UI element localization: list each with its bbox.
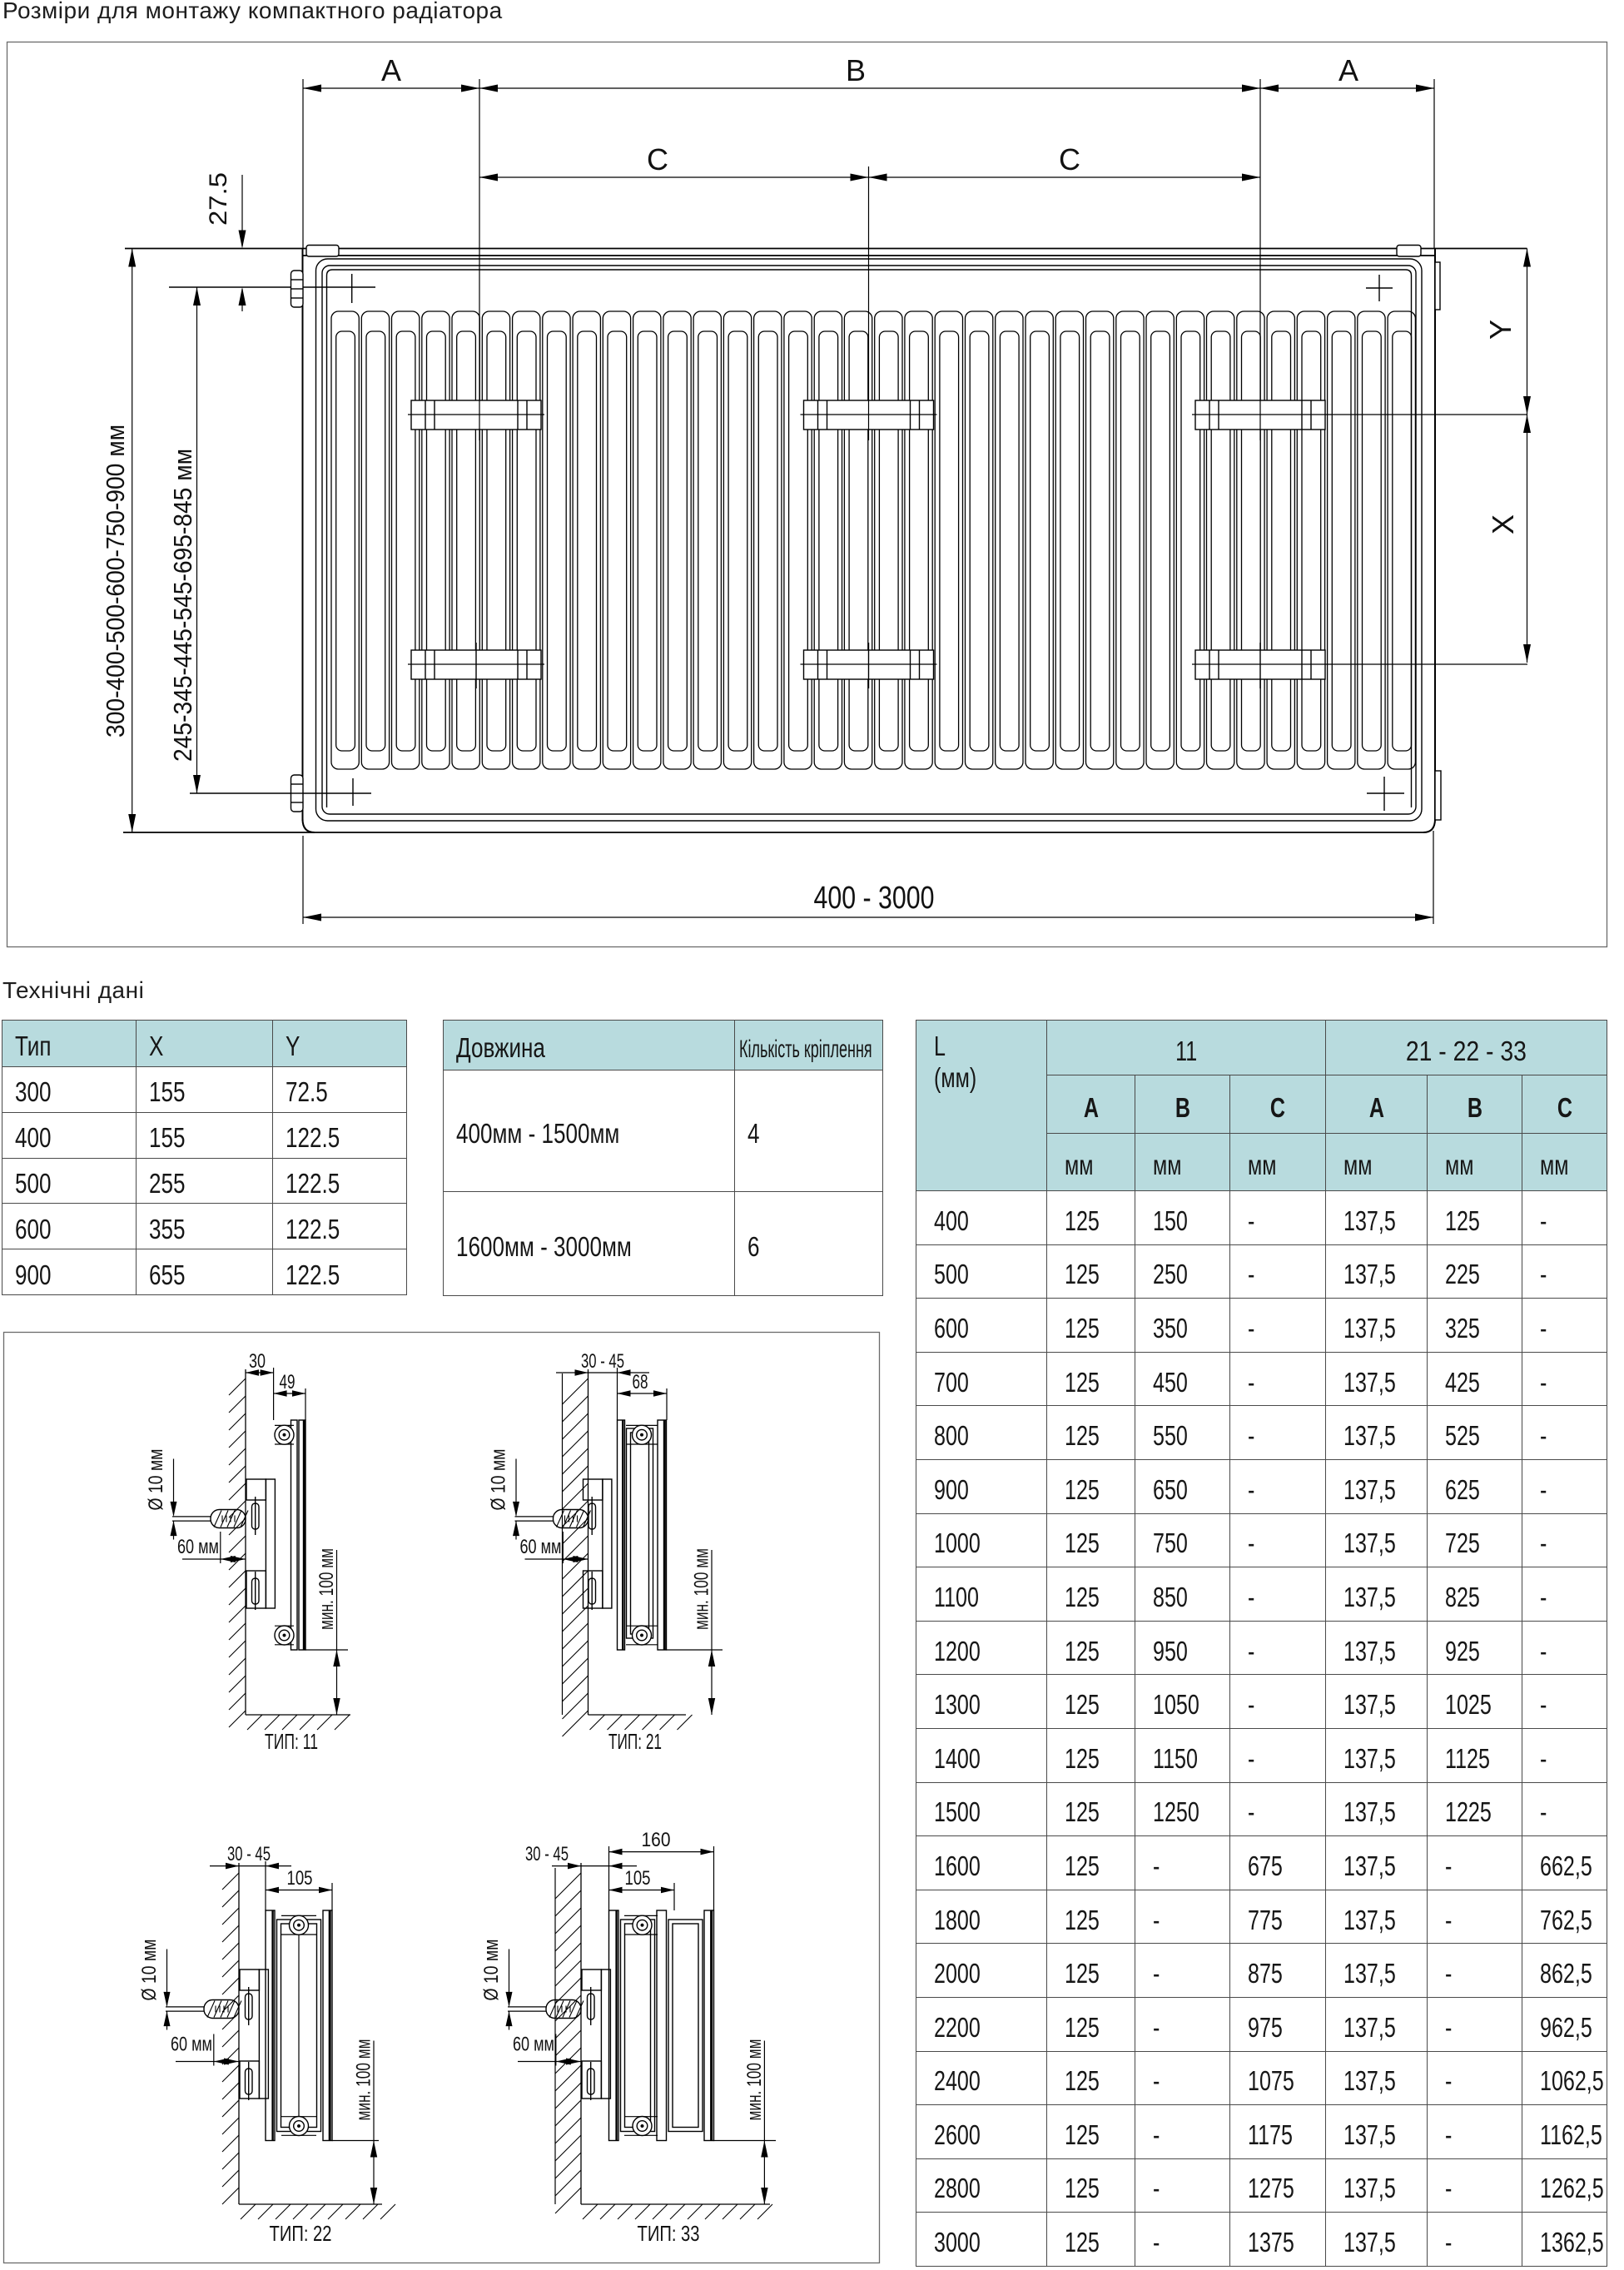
svg-text:160: 160 <box>642 1829 671 1851</box>
svg-text:Ø 10 мм: Ø 10 мм <box>145 1449 167 1511</box>
svg-text:мин. 100 мм: мин. 100 мм <box>315 1548 338 1630</box>
svg-text:105: 105 <box>625 1867 651 1890</box>
svg-text:Ø 10 мм: Ø 10 мм <box>138 1940 161 2001</box>
svg-text:30 - 45: 30 - 45 <box>525 1843 569 1865</box>
svg-text:30 - 45: 30 - 45 <box>227 1843 271 1865</box>
svg-text:245-345-445-545-695-845 мм: 245-345-445-545-695-845 мм <box>168 449 197 762</box>
svg-text:ТИП: 33: ТИП: 33 <box>638 2221 700 2246</box>
svg-text:Ø 10 мм: Ø 10 мм <box>488 1449 510 1511</box>
svg-text:60 мм: 60 мм <box>520 1536 562 1558</box>
svg-text:B: B <box>846 53 866 87</box>
svg-text:мин. 100 мм: мин. 100 мм <box>691 1548 713 1630</box>
svg-text:400 - 3000: 400 - 3000 <box>814 881 935 916</box>
svg-text:Y: Y <box>1483 320 1517 340</box>
svg-text:ТИП: 21: ТИП: 21 <box>608 1729 662 1754</box>
svg-text:60 мм: 60 мм <box>513 2034 554 2056</box>
svg-text:ТИП: 11: ТИП: 11 <box>265 1729 318 1754</box>
svg-text:ТИП: 22: ТИП: 22 <box>270 2221 332 2246</box>
svg-text:27.5: 27.5 <box>205 172 232 226</box>
svg-text:Ø 10 мм: Ø 10 мм <box>480 1940 503 2001</box>
svg-text:A: A <box>1338 53 1358 87</box>
svg-text:49: 49 <box>280 1371 295 1393</box>
svg-text:300-400-500-600-750-900 мм: 300-400-500-600-750-900 мм <box>101 425 130 738</box>
svg-text:A: A <box>381 53 401 87</box>
svg-text:105: 105 <box>287 1867 313 1890</box>
svg-text:C: C <box>647 142 668 176</box>
svg-text:мин. 100 мм: мин. 100 мм <box>353 2039 375 2121</box>
svg-text:68: 68 <box>633 1371 648 1393</box>
svg-text:30 - 45: 30 - 45 <box>581 1350 624 1373</box>
svg-text:60 мм: 60 мм <box>177 1536 219 1558</box>
svg-text:30: 30 <box>249 1350 266 1373</box>
svg-text:X: X <box>1486 514 1520 534</box>
svg-text:60 мм: 60 мм <box>171 2034 212 2056</box>
svg-text:C: C <box>1059 142 1080 176</box>
svg-text:мин. 100 мм: мин. 100 мм <box>743 2039 766 2121</box>
